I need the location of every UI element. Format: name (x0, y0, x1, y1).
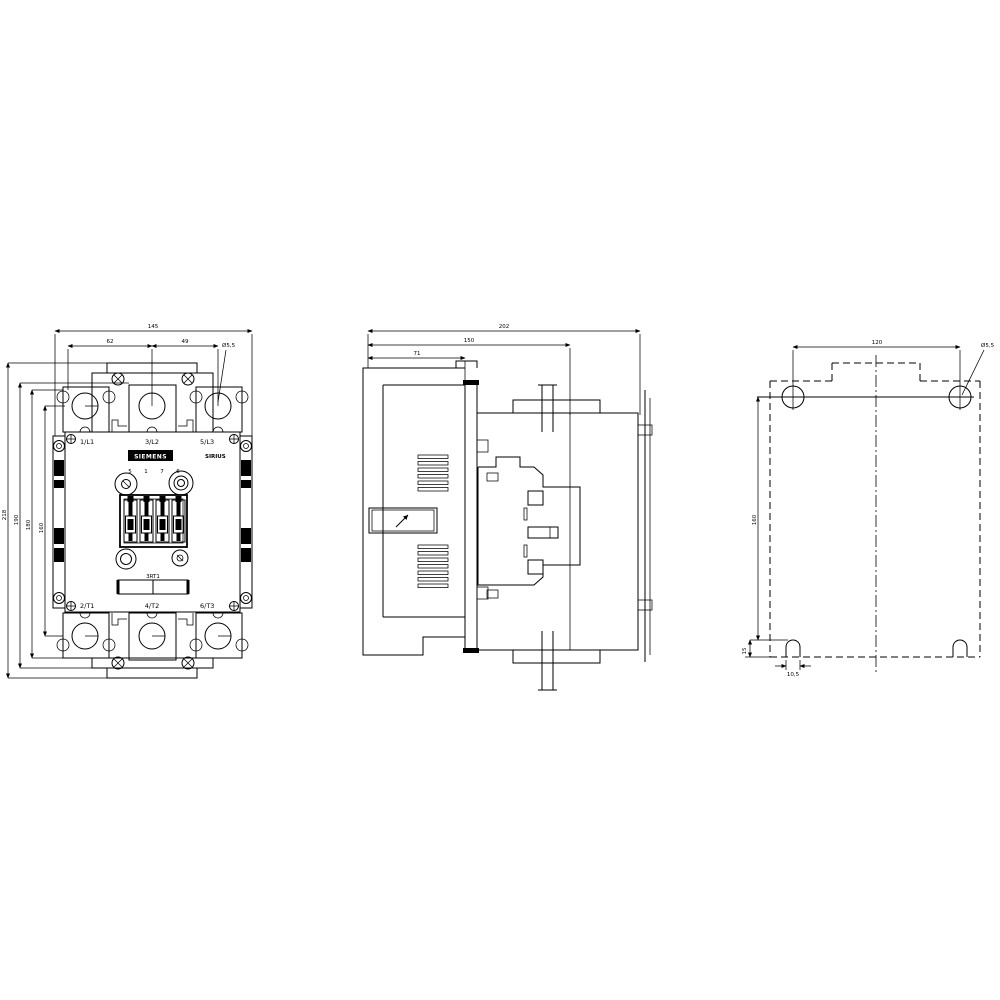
dim-text: 218 (2, 509, 8, 520)
terminal-hole (205, 623, 231, 649)
type-label-plate (117, 580, 190, 594)
dim-text: 10,5 (787, 672, 800, 678)
drill-outline (770, 363, 980, 657)
screw-icon (54, 593, 65, 604)
terminal-label: 1/L1 (80, 438, 94, 446)
drill-hole-callout: Ø5,5 (962, 342, 995, 395)
vent-slats-upper (418, 455, 448, 491)
indicator-window (369, 508, 437, 533)
dimension-drawing: 145 62 49 Ø5,5 (0, 0, 1000, 1000)
dim-text: 71 (414, 351, 421, 357)
side-mechanism (478, 457, 580, 598)
terminal-hole (139, 623, 165, 649)
drill-dim-v: 160 (750, 397, 788, 640)
coil-screw-icon (115, 473, 137, 495)
dim-text: 49 (182, 339, 189, 345)
dim-text: 120 (872, 340, 883, 346)
front-body: 1/L1 3/L2 5/L3 2/T1 4/T2 6/T3 SIEMENS SI… (53, 432, 252, 612)
front-top-terminals (57, 363, 248, 432)
side-mounting-plane (638, 390, 652, 662)
side-main-body (477, 385, 652, 690)
clamp-terminal (156, 496, 169, 542)
terminal-hole (139, 392, 165, 419)
type-label: 3RT1 (146, 574, 160, 580)
side-mid-plate (463, 380, 488, 653)
drill-dim-slot-width: 10,5 (775, 660, 811, 678)
drill-dim-slot-offset: 15 (742, 640, 770, 657)
terminal-hole (72, 623, 98, 649)
dim-text: 62 (107, 339, 114, 345)
aux-number: 1 (144, 469, 148, 475)
terminal-label: 4/T2 (145, 602, 159, 610)
front-dim-sub: 62 49 (68, 339, 218, 392)
dim-text: 160 (39, 522, 45, 533)
mounting-slot (953, 640, 967, 657)
bracket-screw-icon (112, 657, 124, 669)
corner-screw-icon (67, 602, 76, 611)
series-label: SIRIUS (205, 454, 226, 460)
dim-text: 160 (752, 514, 758, 525)
screw-icon (241, 441, 252, 452)
corner-screw-icon (230, 602, 239, 611)
terminal-hole (205, 392, 231, 419)
aux-number: 7 (160, 469, 164, 475)
dim-text: 190 (14, 514, 20, 525)
dim-text: 180 (26, 519, 32, 530)
dim-text: 150 (464, 338, 475, 344)
terminal-label: 3/L2 (145, 438, 159, 446)
drawing-canvas: 145 62 49 Ø5,5 (0, 0, 1000, 1000)
vent-slats-lower (418, 545, 448, 588)
clamp-terminal (140, 496, 153, 542)
terminal-label: 2/T1 (80, 602, 94, 610)
corner-screw-icon (230, 435, 239, 444)
coil-screw-icon (116, 549, 136, 569)
side-coil-housing (363, 361, 477, 655)
dim-text: 202 (499, 324, 510, 330)
coil-screw-icon (172, 550, 188, 566)
coil-screw-icon (169, 471, 193, 495)
dim-text: 15 (742, 647, 748, 654)
corner-screw-icon (67, 435, 76, 444)
drill-dim-h: 120 (793, 340, 960, 410)
side-view: 202 150 71 (363, 324, 652, 690)
bracket-screw-icon (182, 373, 194, 385)
brand-logo-text: SIEMENS (134, 454, 167, 461)
side-dims: 202 150 71 (368, 324, 640, 415)
bracket-screw-icon (182, 657, 194, 669)
dim-text: Ø5,5 (981, 342, 995, 349)
aux-clamp-block (120, 495, 187, 547)
dim-text: 145 (148, 324, 159, 330)
drill-plan: 120 Ø5,5 160 (742, 340, 995, 678)
mounting-slot (786, 640, 800, 657)
terminal-hole (72, 393, 98, 419)
terminal-label: 6/T3 (200, 602, 214, 610)
clamp-terminal (124, 496, 137, 542)
lever-arrow-icon (396, 515, 408, 527)
front-view: 145 62 49 Ø5,5 (2, 324, 252, 678)
terminal-label: 5/L3 (200, 438, 214, 446)
screw-icon (54, 441, 65, 452)
dim-text: Ø5,5 (222, 342, 236, 349)
screw-icon (241, 593, 252, 604)
